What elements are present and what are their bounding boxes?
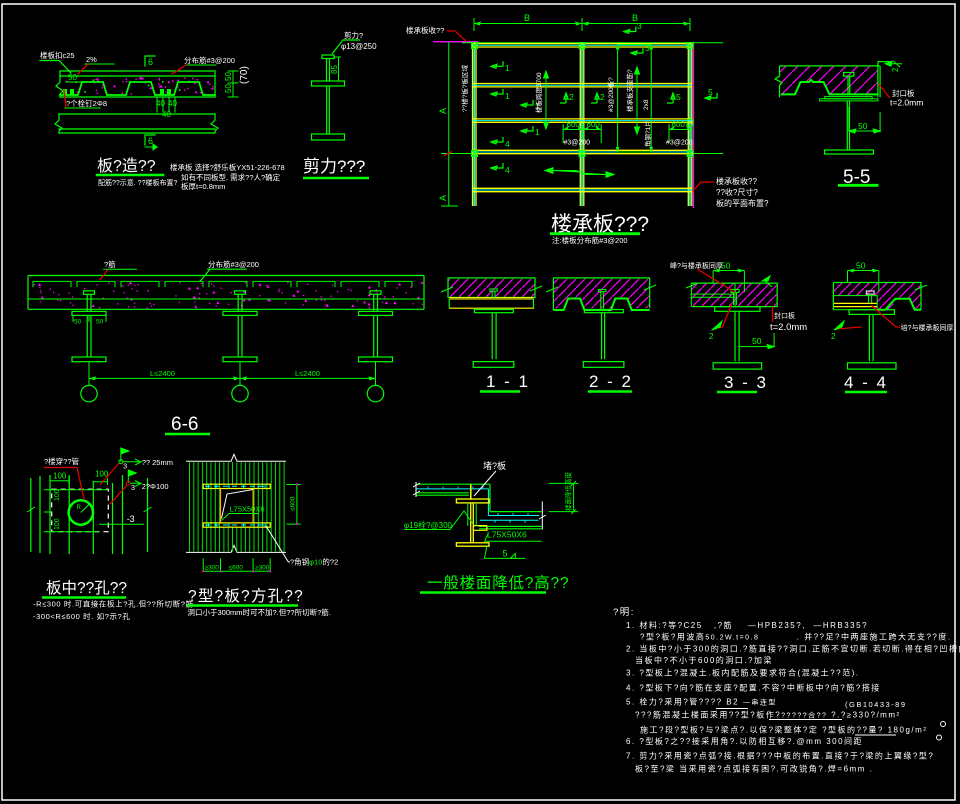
svg-text:B: B: [524, 13, 530, 23]
svg-text:3: 3: [637, 21, 642, 31]
svg-text:#3@200: #3@200: [666, 140, 693, 147]
svg-text:2: 2: [831, 332, 836, 341]
svg-text:4 - 4: 4 - 4: [844, 373, 888, 392]
svg-text:如有不同板型. 需求??人?确定: 如有不同板型. 需求??人?确定: [181, 172, 281, 182]
svg-text:角钢?1片: 角钢?1片: [643, 120, 652, 147]
svg-text:?明:: ?明:: [613, 607, 635, 618]
svg-text:85: 85: [330, 65, 339, 74]
svg-text:?个栓钉2Φ8: ?个栓钉2Φ8: [66, 98, 107, 108]
svg-text:50: 50: [74, 319, 82, 326]
svg-text:楼板跨度3700: 楼板跨度3700: [534, 72, 543, 113]
svg-text:2: 2: [891, 67, 900, 72]
svg-text:(GB10433-89: (GB10433-89: [845, 700, 907, 709]
svg-text:-3: -3: [127, 514, 135, 524]
svg-text:2: 2: [600, 92, 605, 102]
svg-text:50: 50: [224, 72, 233, 81]
svg-text:2 - 2: 2 - 2: [589, 372, 633, 391]
svg-text:#3@200板?: #3@200板?: [606, 77, 615, 112]
svg-text:L75X50X6: L75X50X6: [487, 530, 527, 540]
svg-text:封口板: 封口板: [774, 311, 795, 320]
svg-text:封口板: 封口板: [892, 88, 915, 98]
svg-text:6: 6: [148, 57, 153, 67]
svg-text:L≤2400: L≤2400: [150, 369, 175, 378]
svg-text:3 - 3: 3 - 3: [724, 373, 768, 392]
svg-text:5: 5: [676, 92, 681, 102]
svg-text:600: 600: [567, 120, 581, 129]
svg-text:50: 50: [68, 73, 77, 82]
svg-text:???筋混凝土楼面采用??型?板作??????合?? ?.?: ???筋混凝土楼面采用??型?板作??????合?? ?.?≥330?/mm²: [635, 710, 901, 720]
svg-text:分布筋#3@200: 分布筋#3@200: [184, 55, 235, 65]
svg-text:4. ?型板下?向?筋在支座?配置.不容?中断板中?向?筋?: 4. ?型板下?向?筋在支座?配置.不容?中断板中?向?筋?搭接: [626, 683, 881, 693]
svg-text:L≤2400: L≤2400: [295, 369, 320, 378]
svg-text:6. ?型板?之??接采用角?.以防相互移?.@mm 300: 6. ?型板?之??接采用角?.以防相互移?.@mm 300间距: [626, 736, 863, 746]
svg-text:≤600: ≤600: [290, 496, 297, 511]
svg-text:(70): (70): [239, 66, 250, 84]
svg-text:?型?板?方孔??: ?型?板?方孔??: [188, 587, 304, 605]
svg-text:φ13@250: φ13@250: [341, 42, 377, 51]
svg-text:600: 600: [672, 120, 686, 129]
svg-text:600: 600: [587, 120, 601, 129]
svg-text:100: 100: [54, 518, 61, 530]
svg-text:≥300: ≥300: [255, 565, 270, 572]
svg-text:#3@200: #3@200: [564, 140, 591, 147]
svg-text:楼面降低高度: 楼面降低高度: [564, 472, 573, 512]
svg-text:50: 50: [224, 84, 233, 93]
svg-text:板?造??: 板?造??: [97, 157, 156, 175]
svg-text:2%: 2%: [86, 55, 97, 64]
svg-text:A: A: [438, 108, 448, 114]
svg-text:楼承板支座筋?: 楼承板支座筋?: [625, 69, 634, 112]
svg-text:L75X50X6: L75X50X6: [230, 505, 265, 514]
svg-text:楼承板收??: 楼承板收??: [406, 25, 444, 35]
svg-text:100: 100: [53, 472, 67, 481]
svg-text:配筋??示意. ??楼板布置?: 配筋??示意. ??楼板布置?: [98, 178, 177, 187]
svg-text:?筋: ?筋: [104, 259, 116, 269]
svg-text:50: 50: [858, 121, 868, 131]
svg-text:-300<R≤600 时. 如?示?孔: -300<R≤600 时. 如?示?孔: [33, 611, 130, 621]
svg-text:4: 4: [505, 165, 510, 175]
svg-text:1: 1: [505, 91, 510, 101]
svg-text:50: 50: [96, 319, 104, 326]
svg-text:6-6: 6-6: [171, 414, 198, 435]
svg-text:?角钢φ10的?2: ?角钢φ10的?2: [290, 557, 338, 567]
svg-text:分布筋#3@200: 分布筋#3@200: [208, 259, 259, 269]
svg-text:R: R: [77, 505, 82, 511]
svg-text:楼承板收??: 楼承板收??: [716, 176, 757, 186]
svg-text:当板中?不小于600的洞口.?加梁: 当板中?不小于600的洞口.?加梁: [635, 655, 773, 665]
svg-text:5: 5: [708, 87, 713, 97]
svg-text:6: 6: [148, 136, 153, 146]
svg-text:板中??孔??: 板中??孔??: [46, 579, 127, 597]
svg-text:洞口小于300mm时可不加?.但??所切断?筋.: 洞口小于300mm时可不加?.但??所切断?筋.: [188, 607, 331, 617]
svg-text:≥300: ≥300: [205, 565, 220, 572]
svg-text:施工?段?型板?与?梁点?.以保?梁整体?定 ?型板的??量: 施工?段?型板?与?梁点?.以保?梁整体?定 ?型板的??量? 180g/m²: [640, 725, 927, 735]
svg-text:?? 25mm: ?? 25mm: [142, 458, 173, 467]
svg-text:40: 40: [168, 99, 177, 108]
svg-text:2: 2: [709, 332, 714, 341]
svg-text:2. 当板中?小于300的洞口.?筋直接??洞口.正筋不宜切: 2. 当板中?小于300的洞口.?筋直接??洞口.正筋不宜切断.若切断.得在相?…: [626, 644, 960, 654]
svg-text:40: 40: [162, 110, 171, 119]
svg-text:3: 3: [123, 464, 127, 471]
svg-text:峰?与楼承板同厚: 峰?与楼承板同厚: [670, 261, 723, 270]
svg-text:楼承板 选择?舒乐板YX51-226-678: 楼承板 选择?舒乐板YX51-226-678: [170, 162, 285, 172]
svg-text:5: 5: [503, 549, 508, 559]
svg-text:3. ?型板上?混凝土.板内配筋及要求符合(混凝土??范).: 3. ?型板上?混凝土.板内配筋及要求符合(混凝土??范).: [626, 668, 859, 678]
svg-text:A: A: [438, 195, 448, 201]
svg-text:培?与楼承板同厚: 培?与楼承板同厚: [901, 323, 954, 332]
svg-text:1. 材料:?等?C25 ,?筋 —HPB235?: 1. 材料:?等?C25 ,?筋 —HPB235?, —HRB335?: [626, 620, 868, 630]
svg-text:1: 1: [505, 63, 510, 73]
svg-text:??楼?板?板区域: ??楼?板?板区域: [460, 65, 469, 112]
svg-text:7. 剪力?采用瓷?点弧?接.根据???中板的布置.直接?于: 7. 剪力?采用瓷?点弧?接.根据???中板的布置.直接?于?梁的上翼缘?型?: [626, 751, 934, 761]
svg-text:t=2.0mm: t=2.0mm: [890, 98, 923, 108]
svg-text:堵?板: 堵?板: [483, 460, 506, 471]
svg-text:40: 40: [156, 99, 165, 108]
svg-text:50: 50: [856, 261, 866, 271]
svg-text:剪力???: 剪力???: [303, 157, 365, 176]
svg-text:板的平面布置?: 板的平面布置?: [716, 198, 769, 208]
svg-text:≤600: ≤600: [229, 565, 244, 572]
svg-text:t=2.0mm: t=2.0mm: [770, 322, 807, 333]
svg-text:一般楼面降低?高??: 一般楼面降低?高??: [427, 574, 569, 592]
svg-text:3: 3: [131, 485, 135, 492]
svg-text:??收?尺寸?: ??收?尺寸?: [716, 187, 758, 197]
svg-text:注:楼板分布筋#3@200: 注:楼板分布筋#3@200: [552, 235, 628, 245]
svg-text:2x8: 2x8: [643, 99, 650, 110]
svg-text:φ19栓?@300: φ19栓?@300: [404, 520, 453, 530]
svg-text:3: 3: [645, 43, 650, 53]
svg-text:?楼穿??管: ?楼穿??管: [44, 456, 80, 466]
svg-text:4: 4: [505, 139, 510, 149]
svg-text:2: 2: [569, 92, 574, 102]
svg-text:板厚t=0.8mm: 板厚t=0.8mm: [181, 181, 225, 191]
svg-text:1 - 1: 1 - 1: [486, 372, 530, 391]
svg-text:50: 50: [752, 336, 762, 346]
svg-text:?型?板?用波高50.2W.t=0.8 .: ?型?板?用波高50.2W.t=0.8 . 并??足?中两座施工跨大无支??度.: [640, 632, 952, 642]
svg-text:1: 1: [535, 127, 540, 137]
svg-text:楼板扣c25: 楼板扣c25: [40, 50, 75, 60]
svg-text:剪力?: 剪力?: [344, 30, 363, 40]
svg-text:板?至?梁 当采用瓷?点弧接有困?.可改锐角?.焊=6mm: 板?至?梁 当采用瓷?点弧接有困?.可改锐角?.焊=6mm .: [635, 764, 873, 774]
svg-text:2?Φ100: 2?Φ100: [142, 482, 169, 491]
svg-text:100: 100: [54, 489, 61, 501]
svg-text:-R≤300 时.可直接在板上?孔.但??所切断?筋: -R≤300 时.可直接在板上?孔.但??所切断?筋: [33, 599, 194, 609]
